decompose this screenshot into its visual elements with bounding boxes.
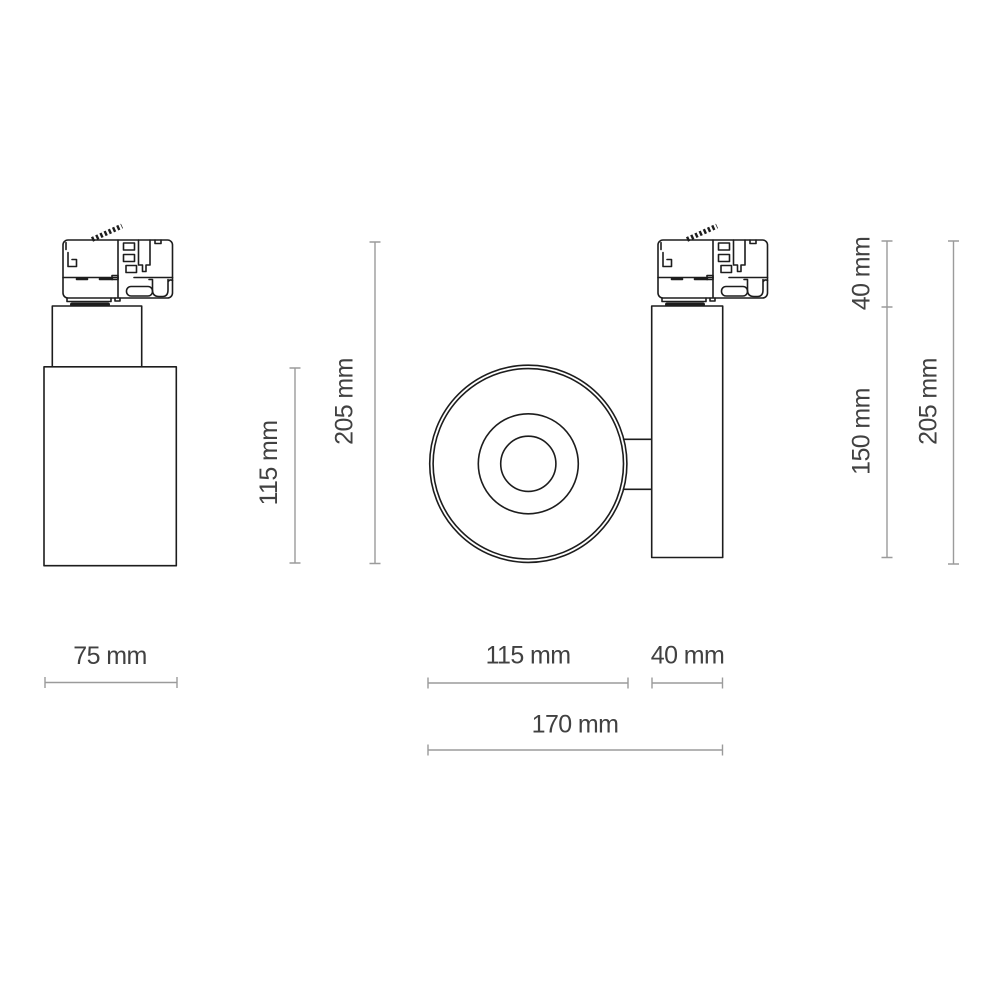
front-view	[430, 226, 768, 562]
track-adapter-icon	[658, 226, 768, 305]
spotlight-dimension-drawing: 115 mm 205 mm 75 mm 115 mm 40 mm 170 mm …	[0, 0, 1000, 1000]
lamp-neck	[52, 306, 141, 367]
dim-left-width: 75 mm	[45, 642, 177, 688]
dim-label-adapter-height: 40 mm	[848, 237, 876, 310]
side-view	[44, 226, 176, 566]
lamp-face	[430, 365, 652, 562]
drawing-canvas: 115 mm 205 mm 75 mm 115 mm 40 mm 170 mm …	[0, 0, 1000, 1000]
dim-total-length: 170 mm	[428, 711, 723, 756]
dim-front-diameter: 115 mm	[428, 642, 628, 689]
lamp-body	[44, 367, 176, 566]
dim-right-segments: 40 mm 150 mm	[848, 237, 893, 558]
dim-right-total-height: 205 mm	[915, 241, 960, 564]
track-adapter-icon	[63, 226, 173, 305]
dim-label-left-body-height: 115 mm	[255, 421, 283, 506]
dim-left-body-height: 115 mm	[255, 368, 301, 563]
dim-left-total-height: 205 mm	[331, 242, 381, 564]
dim-label-left-total-height: 205 mm	[331, 358, 359, 445]
dim-side-depth: 40 mm	[651, 642, 724, 689]
lamp-body-side	[652, 306, 723, 558]
dim-label-total-length: 170 mm	[532, 711, 619, 739]
dim-label-front-diameter: 115 mm	[486, 642, 571, 670]
dim-label-side-depth: 40 mm	[651, 642, 724, 670]
dim-label-right-body-height: 150 mm	[848, 388, 876, 475]
dim-label-left-width: 75 mm	[73, 642, 146, 670]
dim-label-right-total-height: 205 mm	[915, 358, 943, 445]
